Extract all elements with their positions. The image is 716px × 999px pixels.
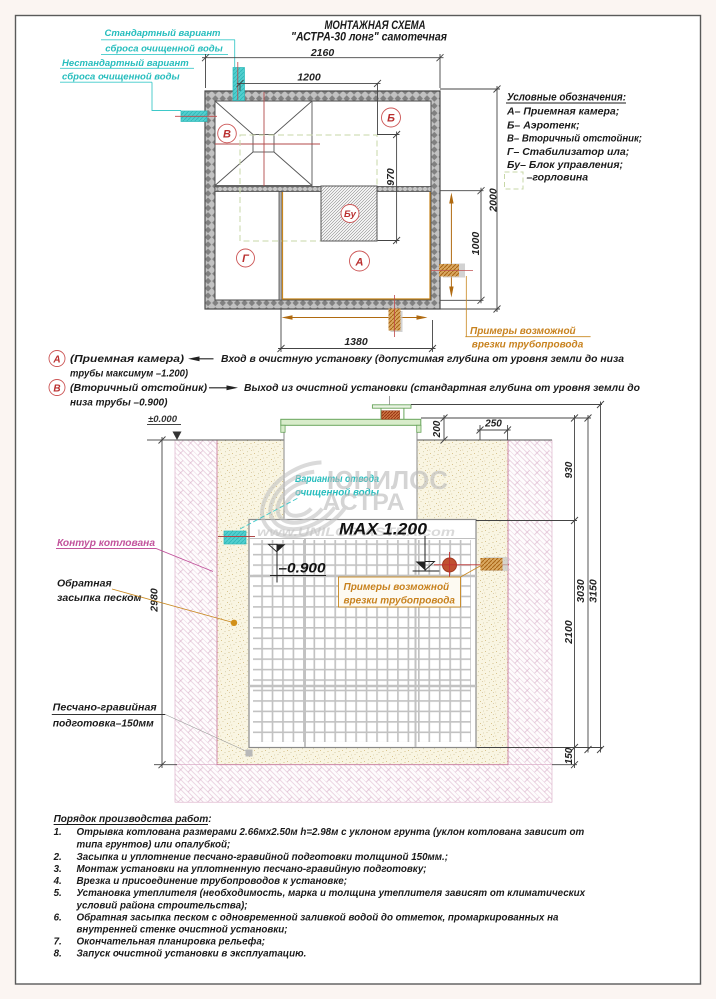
svg-text:2.: 2. <box>53 852 62 863</box>
svg-text:1380: 1380 <box>344 336 368 348</box>
svg-text:Б: Б <box>387 113 395 125</box>
svg-text:МАХ 1.200: МАХ 1.200 <box>339 521 428 539</box>
svg-text:8.: 8. <box>54 948 62 959</box>
svg-text:низа трубы –0.900): низа трубы –0.900) <box>70 397 168 409</box>
svg-text:сброса очищенной воды: сброса очищенной воды <box>105 44 223 55</box>
svg-text:Отрывка котлована размерами 2.: Отрывка котлована размерами 2.66мх2.50м … <box>77 827 585 838</box>
svg-text:(Вторичный отстойник): (Вторичный отстойник) <box>70 383 208 394</box>
svg-text:Примеры возможной: Примеры возможной <box>344 582 450 593</box>
svg-text:"АСТРА-30 лонг" самотечная: "АСТРА-30 лонг" самотечная <box>291 32 447 44</box>
svg-text:АСТРА: АСТРА <box>323 489 405 516</box>
svg-text:–0.900: –0.900 <box>279 560 326 576</box>
svg-text:В– Вторичный отстойник;: В– Вторичный отстойник; <box>507 133 642 145</box>
svg-text:Г– Стабилизатор ила;: Г– Стабилизатор ила; <box>507 146 629 158</box>
svg-text:Обратная: Обратная <box>57 578 112 590</box>
svg-text:В: В <box>53 384 60 395</box>
svg-text:МОНТАЖНАЯ СХЕМА: МОНТАЖНАЯ СХЕМА <box>325 18 426 32</box>
svg-text:5.: 5. <box>54 888 62 899</box>
svg-text:–горловина: –горловина <box>527 172 589 184</box>
svg-text:врезки трубопровода: врезки трубопровода <box>472 339 584 351</box>
svg-text:Контур котлована: Контур котлована <box>57 537 155 549</box>
svg-text:Б– Аэротенк;: Б– Аэротенк; <box>507 120 580 132</box>
svg-text:1000: 1000 <box>470 232 482 256</box>
svg-text:Песчано-гравийная: Песчано-гравийная <box>53 702 157 714</box>
svg-text:А– Приемная камера;: А– Приемная камера; <box>506 106 619 118</box>
svg-text:2100: 2100 <box>563 620 575 645</box>
svg-text:930: 930 <box>564 461 575 478</box>
svg-text:В: В <box>223 129 231 141</box>
svg-text:1200: 1200 <box>297 72 321 84</box>
svg-text:врезки трубопровода: врезки трубопровода <box>344 595 456 607</box>
svg-text:А: А <box>355 257 364 269</box>
svg-text:7.: 7. <box>54 936 62 947</box>
svg-text:внутренней стенке очистной уст: внутренней стенке очистной установки; <box>77 924 288 935</box>
svg-text:2160: 2160 <box>310 47 335 59</box>
svg-text:Бу: Бу <box>344 209 357 220</box>
svg-text:(Приемная камера): (Приемная камера) <box>70 354 185 365</box>
svg-text:Бу– Блок управления;: Бу– Блок управления; <box>507 159 623 171</box>
svg-text:±0.000: ±0.000 <box>148 414 178 425</box>
svg-text:Обратная засыпка песком с одно: Обратная засыпка песком с одновременной … <box>77 912 559 923</box>
svg-text:3030: 3030 <box>575 579 587 603</box>
svg-text:типа грунтов) или опалубкой;: типа грунтов) или опалубкой; <box>77 839 231 850</box>
svg-text:Окончательная планировка релье: Окончательная планировка рельефа; <box>77 936 266 947</box>
svg-text:1.: 1. <box>54 827 62 838</box>
svg-text:6.: 6. <box>54 912 62 923</box>
svg-text:Установка утеплителя (необходи: Установка утеплителя (необходимость, мар… <box>77 888 586 899</box>
svg-text:трубы максимум –1.200): трубы максимум –1.200) <box>70 368 189 380</box>
svg-text:Нестандартный вариант: Нестандартный вариант <box>62 58 189 69</box>
svg-text:условий района строительства);: условий района строительства); <box>76 900 248 911</box>
svg-text:4.: 4. <box>53 876 62 887</box>
svg-text:Стандартный вариант: Стандартный вариант <box>105 28 222 39</box>
svg-text:150: 150 <box>564 747 575 764</box>
svg-text:250: 250 <box>484 419 502 430</box>
svg-text:3.: 3. <box>54 864 62 875</box>
svg-text:970: 970 <box>385 168 397 186</box>
svg-text:Засыпка и уплотнение песчано-г: Засыпка и уплотнение песчано-гравийной п… <box>77 852 449 863</box>
svg-text:подготовка–150мм: подготовка–150мм <box>53 718 154 730</box>
svg-text:Порядок производства работ:: Порядок производства работ: <box>54 813 212 825</box>
svg-text:А: А <box>52 355 60 366</box>
svg-text:Вход в очистную установку (доп: Вход в очистную установку (допустимая гл… <box>221 353 624 365</box>
svg-text:сброса очищенной воды: сброса очищенной воды <box>62 72 180 83</box>
svg-text:2000: 2000 <box>488 188 500 213</box>
svg-text:Врезка и присоединение трубопр: Врезка и присоединение трубопроводов к у… <box>77 876 348 887</box>
svg-text:Примеры возможной: Примеры возможной <box>470 326 576 337</box>
svg-text:3150: 3150 <box>588 579 600 603</box>
svg-text:Запуск очистной установки в эк: Запуск очистной установки в эксплуатацию… <box>77 948 307 959</box>
svg-text:Выход из очистной установки (с: Выход из очистной установки (стандартная… <box>244 382 640 394</box>
svg-text:Монтаж установки на уплотненну: Монтаж установки на уплотненную песчано-… <box>77 864 427 875</box>
svg-text:Условные обозначения:: Условные обозначения: <box>507 92 626 104</box>
svg-text:200: 200 <box>432 420 443 438</box>
